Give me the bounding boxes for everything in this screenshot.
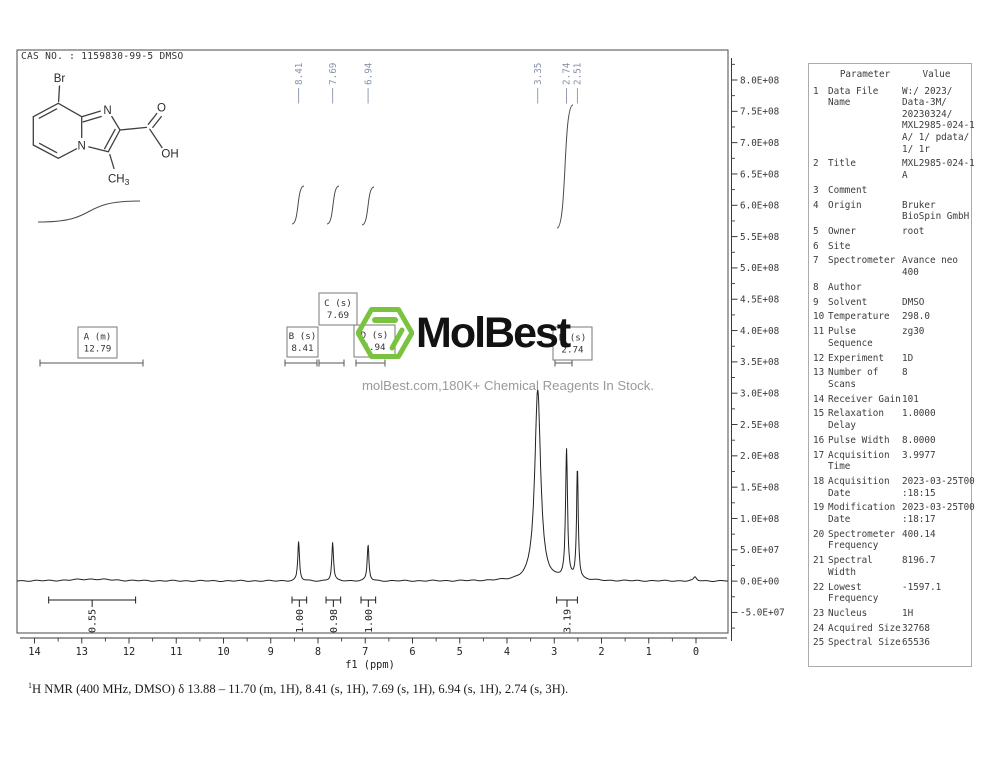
atom-label-n-bridge: N	[78, 140, 86, 152]
param-pname: Number of Scans	[828, 367, 902, 390]
param-pval: 101	[902, 394, 971, 406]
peak-label: 6.94	[363, 62, 374, 85]
param-pnum: 20	[813, 529, 828, 552]
param-pname: Author	[828, 282, 902, 294]
molbest-logo: MolBest	[356, 304, 569, 362]
header-value: Value	[902, 69, 971, 81]
parameter-table: Parameter Value 1Data File NameW:/ 2023/…	[808, 63, 972, 667]
param-pnum: 7	[813, 255, 828, 278]
y-tick-label: 5.5E+08	[740, 232, 779, 243]
param-pval: zg30	[902, 326, 971, 349]
atom-label-o: O	[157, 103, 166, 115]
param-pval: 8.0000	[902, 435, 971, 447]
param-row: 16Pulse Width8.0000	[813, 435, 971, 447]
param-pval: W:/ 2023/ Data-3M/ 20230324/ MXL2985-024…	[902, 86, 971, 156]
param-pnum: 12	[813, 353, 828, 365]
header-parameter: Parameter	[828, 69, 902, 81]
y-tick-label: 0.0E+00	[740, 576, 779, 587]
y-tick-label: 4.0E+08	[740, 326, 779, 337]
param-pval: Bruker BioSpin GmbH	[902, 200, 971, 223]
assignment-shift: 7.69	[327, 310, 349, 321]
param-pname: Owner	[828, 226, 902, 238]
y-tick-label: 3.0E+08	[740, 389, 779, 400]
molbest-hexagon-icon	[356, 304, 414, 362]
param-pnum: 19	[813, 502, 828, 525]
param-row: 1Data File NameW:/ 2023/ Data-3M/ 202303…	[813, 86, 971, 156]
param-pnum: 8	[813, 282, 828, 294]
x-tick-label: 8	[315, 646, 321, 658]
param-pnum: 15	[813, 408, 828, 431]
integral-curve	[38, 201, 140, 222]
param-row: 14Receiver Gain101	[813, 394, 971, 406]
param-pnum: 13	[813, 367, 828, 390]
param-pval: 8	[902, 367, 971, 390]
y-tick-label: 7.0E+08	[740, 138, 779, 149]
param-pname: Nucleus	[828, 608, 902, 620]
param-pval: 1.0000	[902, 408, 971, 431]
integral-curve	[292, 186, 304, 224]
param-pname: Spectrometer Frequency	[828, 529, 902, 552]
x-tick-label: 12	[123, 646, 135, 658]
param-pnum: 6	[813, 241, 828, 253]
y-tick-label: 3.5E+08	[740, 357, 779, 368]
nmr-caption: 1H NMR (400 MHz, DMSO) δ 13.88 – 11.70 (…	[28, 681, 568, 697]
x-tick-label: 3	[551, 646, 557, 658]
param-pnum: 1	[813, 86, 828, 156]
param-pname: Data File Name	[828, 86, 902, 156]
y-tick-label: 4.5E+08	[740, 295, 779, 306]
param-pval: 2023-03-25T00 :18:17	[902, 502, 971, 525]
param-pname: Title	[828, 158, 902, 181]
peak-label: 8.41	[294, 63, 305, 85]
param-pval: root	[902, 226, 971, 238]
param-pval: 3.9977	[902, 450, 971, 473]
param-row: 10Temperature298.0	[813, 311, 971, 323]
x-tick-label: 6	[409, 646, 415, 658]
param-row: 21Spectral Width8196.7	[813, 555, 971, 578]
param-pname: Solvent	[828, 297, 902, 309]
param-row: 7SpectrometerAvance neo 400	[813, 255, 971, 278]
molecule-structure: Br N N O OH CH3	[20, 65, 195, 193]
param-pval: Avance neo 400	[902, 255, 971, 278]
integral-value: 1.00	[295, 609, 306, 633]
param-pval	[902, 241, 971, 253]
param-pnum: 2	[813, 158, 828, 181]
y-tick-label: 2.0E+08	[740, 451, 779, 462]
y-tick-label: 6.5E+08	[740, 169, 779, 180]
param-pname: Acquisition Date	[828, 476, 902, 499]
x-axis-title: f1 (ppm)	[345, 659, 395, 671]
assignment-shift: 8.41	[291, 343, 313, 354]
param-pnum: 25	[813, 637, 828, 649]
x-tick-label: 9	[268, 646, 274, 658]
watermark-tagline: molBest.com,180K+ Chemical Reagents In S…	[350, 378, 666, 393]
integral-curve	[327, 186, 339, 224]
param-row: 17Acquisition Time3.9977	[813, 450, 971, 473]
param-pname: Acquired Size	[828, 623, 902, 635]
caption-text: H NMR (400 MHz, DMSO) δ 13.88 – 11.70 (m…	[32, 682, 568, 696]
param-pval: 2023-03-25T00 :18:15	[902, 476, 971, 499]
atom-label-br: Br	[54, 73, 66, 85]
param-pval: DMSO	[902, 297, 971, 309]
parameter-rows: 1Data File NameW:/ 2023/ Data-3M/ 202303…	[813, 86, 971, 649]
param-row: 19Modification Date2023-03-25T00 :18:17	[813, 502, 971, 525]
assignment-id: B (s)	[289, 331, 317, 342]
x-tick-label: 11	[170, 646, 182, 658]
integral-value: 3.19	[563, 609, 574, 633]
x-tick-label: 4	[504, 646, 510, 658]
y-tick-label: 5.0E+07	[740, 545, 779, 556]
param-pval: 65536	[902, 637, 971, 649]
param-pname: Site	[828, 241, 902, 253]
param-pval: 1D	[902, 353, 971, 365]
bond-lines	[33, 86, 162, 169]
param-pnum: 21	[813, 555, 828, 578]
integral-value: 0.55	[88, 609, 99, 633]
param-pname: Acquisition Time	[828, 450, 902, 473]
molbest-logo-text: MolBest	[416, 304, 569, 362]
param-row: 8Author	[813, 282, 971, 294]
assignment-shift: 12.79	[84, 344, 112, 355]
param-pnum: 10	[813, 311, 828, 323]
param-row: 6Site	[813, 241, 971, 253]
param-pval: 1H	[902, 608, 971, 620]
param-pname: Pulse Sequence	[828, 326, 902, 349]
param-pval: 400.14	[902, 529, 971, 552]
peak-label: 2.51	[573, 63, 584, 85]
param-pval	[902, 282, 971, 294]
parameter-table-header: Parameter Value	[813, 69, 971, 81]
y-tick-label: 1.0E+08	[740, 514, 779, 525]
y-tick-label: 7.5E+08	[740, 107, 779, 118]
param-row: 4OriginBruker BioSpin GmbH	[813, 200, 971, 223]
param-pval	[902, 185, 971, 197]
peak-label: 2.74	[562, 62, 573, 85]
x-tick-label: 1	[646, 646, 652, 658]
param-pname: Comment	[828, 185, 902, 197]
param-pnum: 14	[813, 394, 828, 406]
cas-number-line: CAS NO. : 1159830-99-5 DMSO	[21, 51, 184, 62]
assignment-id: A (m)	[84, 332, 112, 343]
param-pval: MXL2985-024-1 A	[902, 158, 971, 181]
param-pval: 32768	[902, 623, 971, 635]
integral-value: 1.00	[364, 609, 375, 633]
param-row: 12Experiment1D	[813, 353, 971, 365]
param-pnum: 16	[813, 435, 828, 447]
param-pname: Experiment	[828, 353, 902, 365]
x-tick-label: 0	[693, 646, 699, 658]
param-pnum: 22	[813, 582, 828, 605]
assignment-id: C (s)	[324, 298, 352, 309]
param-row: 25Spectral Size65536	[813, 637, 971, 649]
x-tick-label: 7	[362, 646, 368, 658]
param-row: 20Spectrometer Frequency400.14	[813, 529, 971, 552]
param-pname: Origin	[828, 200, 902, 223]
param-pval: 8196.7	[902, 555, 971, 578]
param-pname: Pulse Width	[828, 435, 902, 447]
param-pval: -1597.1	[902, 582, 971, 605]
atom-label-ch3: CH3	[108, 174, 130, 188]
param-row: 2TitleMXL2985-024-1 A	[813, 158, 971, 181]
param-pname: Lowest Frequency	[828, 582, 902, 605]
peak-label: 7.69	[328, 63, 339, 85]
param-row: 18Acquisition Date2023-03-25T00 :18:15	[813, 476, 971, 499]
param-pname: Temperature	[828, 311, 902, 323]
param-row: 13Number of Scans8	[813, 367, 971, 390]
y-tick-label: 2.5E+08	[740, 420, 779, 431]
param-pval: 298.0	[902, 311, 971, 323]
x-tick-label: 14	[28, 646, 40, 658]
x-tick-label: 2	[598, 646, 604, 658]
atom-label-n-imidazole: N	[103, 105, 111, 117]
param-row: 3Comment	[813, 185, 971, 197]
param-pname: Modification Date	[828, 502, 902, 525]
y-tick-label: 1.5E+08	[740, 482, 779, 493]
x-tick-label: 13	[76, 646, 88, 658]
param-pname: Spectrometer	[828, 255, 902, 278]
y-tick-label: 6.0E+08	[740, 201, 779, 212]
atom-label-oh: OH	[161, 149, 178, 161]
y-tick-label: 5.0E+08	[740, 263, 779, 274]
integral-curve	[362, 187, 374, 225]
integral-value: 0.98	[329, 609, 340, 633]
x-tick-label: 5	[457, 646, 463, 658]
param-pname: Spectral Width	[828, 555, 902, 578]
param-pnum: 24	[813, 623, 828, 635]
param-pnum: 5	[813, 226, 828, 238]
param-row: 24Acquired Size32768	[813, 623, 971, 635]
param-pname: Receiver Gain	[828, 394, 902, 406]
param-pnum: 11	[813, 326, 828, 349]
x-tick-label: 10	[217, 646, 229, 658]
param-pnum: 9	[813, 297, 828, 309]
param-pnum: 4	[813, 200, 828, 223]
param-row: 23Nucleus1H	[813, 608, 971, 620]
param-pnum: 3	[813, 185, 828, 197]
y-tick-label: 8.0E+08	[740, 75, 779, 86]
integral-curve	[557, 105, 573, 228]
y-tick-label: -5.0E+07	[740, 608, 785, 619]
param-row: 11Pulse Sequencezg30	[813, 326, 971, 349]
param-pnum: 18	[813, 476, 828, 499]
param-pname: Spectral Size	[828, 637, 902, 649]
param-pnum: 23	[813, 608, 828, 620]
param-pname: Relaxation Delay	[828, 408, 902, 431]
param-row: 22Lowest Frequency-1597.1	[813, 582, 971, 605]
nmr-report-page: 8.0E+087.5E+087.0E+086.5E+086.0E+085.5E+…	[0, 0, 1000, 773]
param-row: 15Relaxation Delay1.0000	[813, 408, 971, 431]
param-row: 9SolventDMSO	[813, 297, 971, 309]
param-pnum: 17	[813, 450, 828, 473]
peak-label: 3.35	[533, 63, 544, 85]
spectrum-trace	[17, 390, 728, 581]
param-row: 5Ownerroot	[813, 226, 971, 238]
